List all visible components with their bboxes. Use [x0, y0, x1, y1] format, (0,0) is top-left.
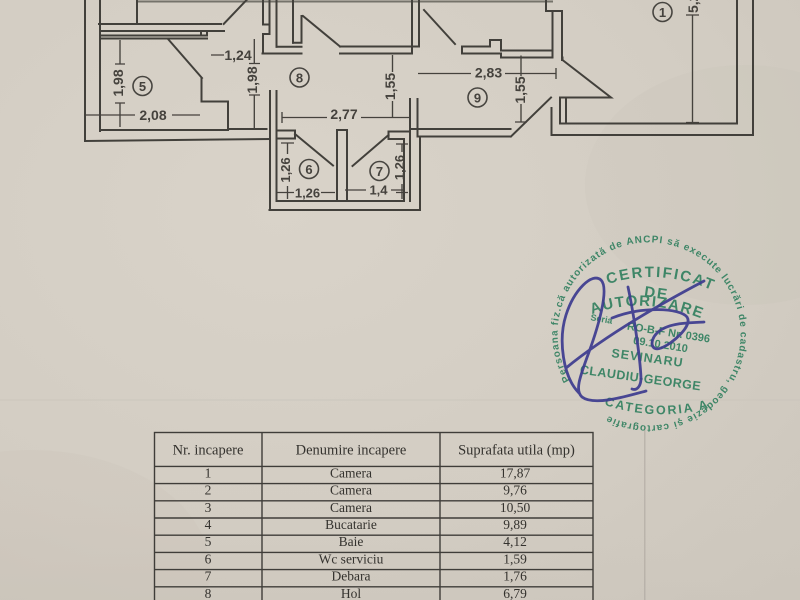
- svg-text:1,24: 1,24: [224, 47, 251, 63]
- svg-text:2: 2: [205, 483, 212, 498]
- svg-text:5,20: 5,20: [685, 0, 701, 13]
- svg-text:1,4: 1,4: [369, 183, 388, 198]
- svg-text:5: 5: [205, 534, 212, 549]
- svg-text:1,26: 1,26: [278, 157, 293, 182]
- svg-text:Debara: Debara: [332, 569, 371, 584]
- svg-text:1: 1: [205, 465, 212, 480]
- svg-text:2,08: 2,08: [139, 107, 166, 123]
- svg-text:8: 8: [296, 71, 303, 86]
- svg-text:1,26: 1,26: [392, 155, 407, 180]
- svg-text:4,12: 4,12: [503, 534, 527, 549]
- svg-text:9: 9: [474, 91, 481, 106]
- svg-text:2,77: 2,77: [330, 106, 357, 122]
- svg-text:Hol: Hol: [341, 586, 361, 600]
- svg-text:9,89: 9,89: [503, 517, 527, 532]
- svg-text:Camera: Camera: [330, 500, 372, 515]
- svg-text:1,55: 1,55: [382, 73, 398, 100]
- svg-text:1,98: 1,98: [244, 66, 260, 93]
- svg-text:4: 4: [205, 517, 212, 532]
- svg-text:1,59: 1,59: [503, 551, 527, 566]
- svg-text:7: 7: [205, 569, 212, 584]
- svg-text:1,76: 1,76: [503, 569, 527, 584]
- svg-text:Bucatarie: Bucatarie: [325, 517, 377, 532]
- svg-text:Suprafata utila (mp): Suprafata utila (mp): [458, 443, 575, 459]
- svg-text:5: 5: [139, 79, 146, 94]
- svg-text:1,98: 1,98: [110, 69, 126, 96]
- svg-text:1,26: 1,26: [295, 186, 320, 201]
- svg-text:Camera: Camera: [330, 483, 372, 498]
- svg-text:2,83: 2,83: [475, 65, 502, 81]
- svg-text:17,87: 17,87: [500, 465, 531, 480]
- svg-text:Camera: Camera: [330, 465, 372, 480]
- svg-text:1: 1: [659, 5, 666, 20]
- svg-text:Baie: Baie: [339, 534, 364, 549]
- svg-text:Nr. incapere: Nr. incapere: [173, 443, 244, 459]
- svg-text:6,79: 6,79: [503, 586, 527, 600]
- svg-text:Wc serviciu: Wc serviciu: [319, 551, 384, 566]
- svg-text:9,76: 9,76: [503, 483, 527, 498]
- svg-text:1,55: 1,55: [512, 76, 528, 103]
- svg-text:7: 7: [376, 164, 383, 179]
- svg-text:Denumire incapere: Denumire incapere: [296, 443, 407, 459]
- svg-text:8: 8: [205, 586, 212, 600]
- svg-text:6: 6: [305, 162, 312, 177]
- svg-text:3: 3: [205, 500, 212, 515]
- svg-text:10,50: 10,50: [500, 500, 531, 515]
- svg-text:6: 6: [205, 551, 212, 566]
